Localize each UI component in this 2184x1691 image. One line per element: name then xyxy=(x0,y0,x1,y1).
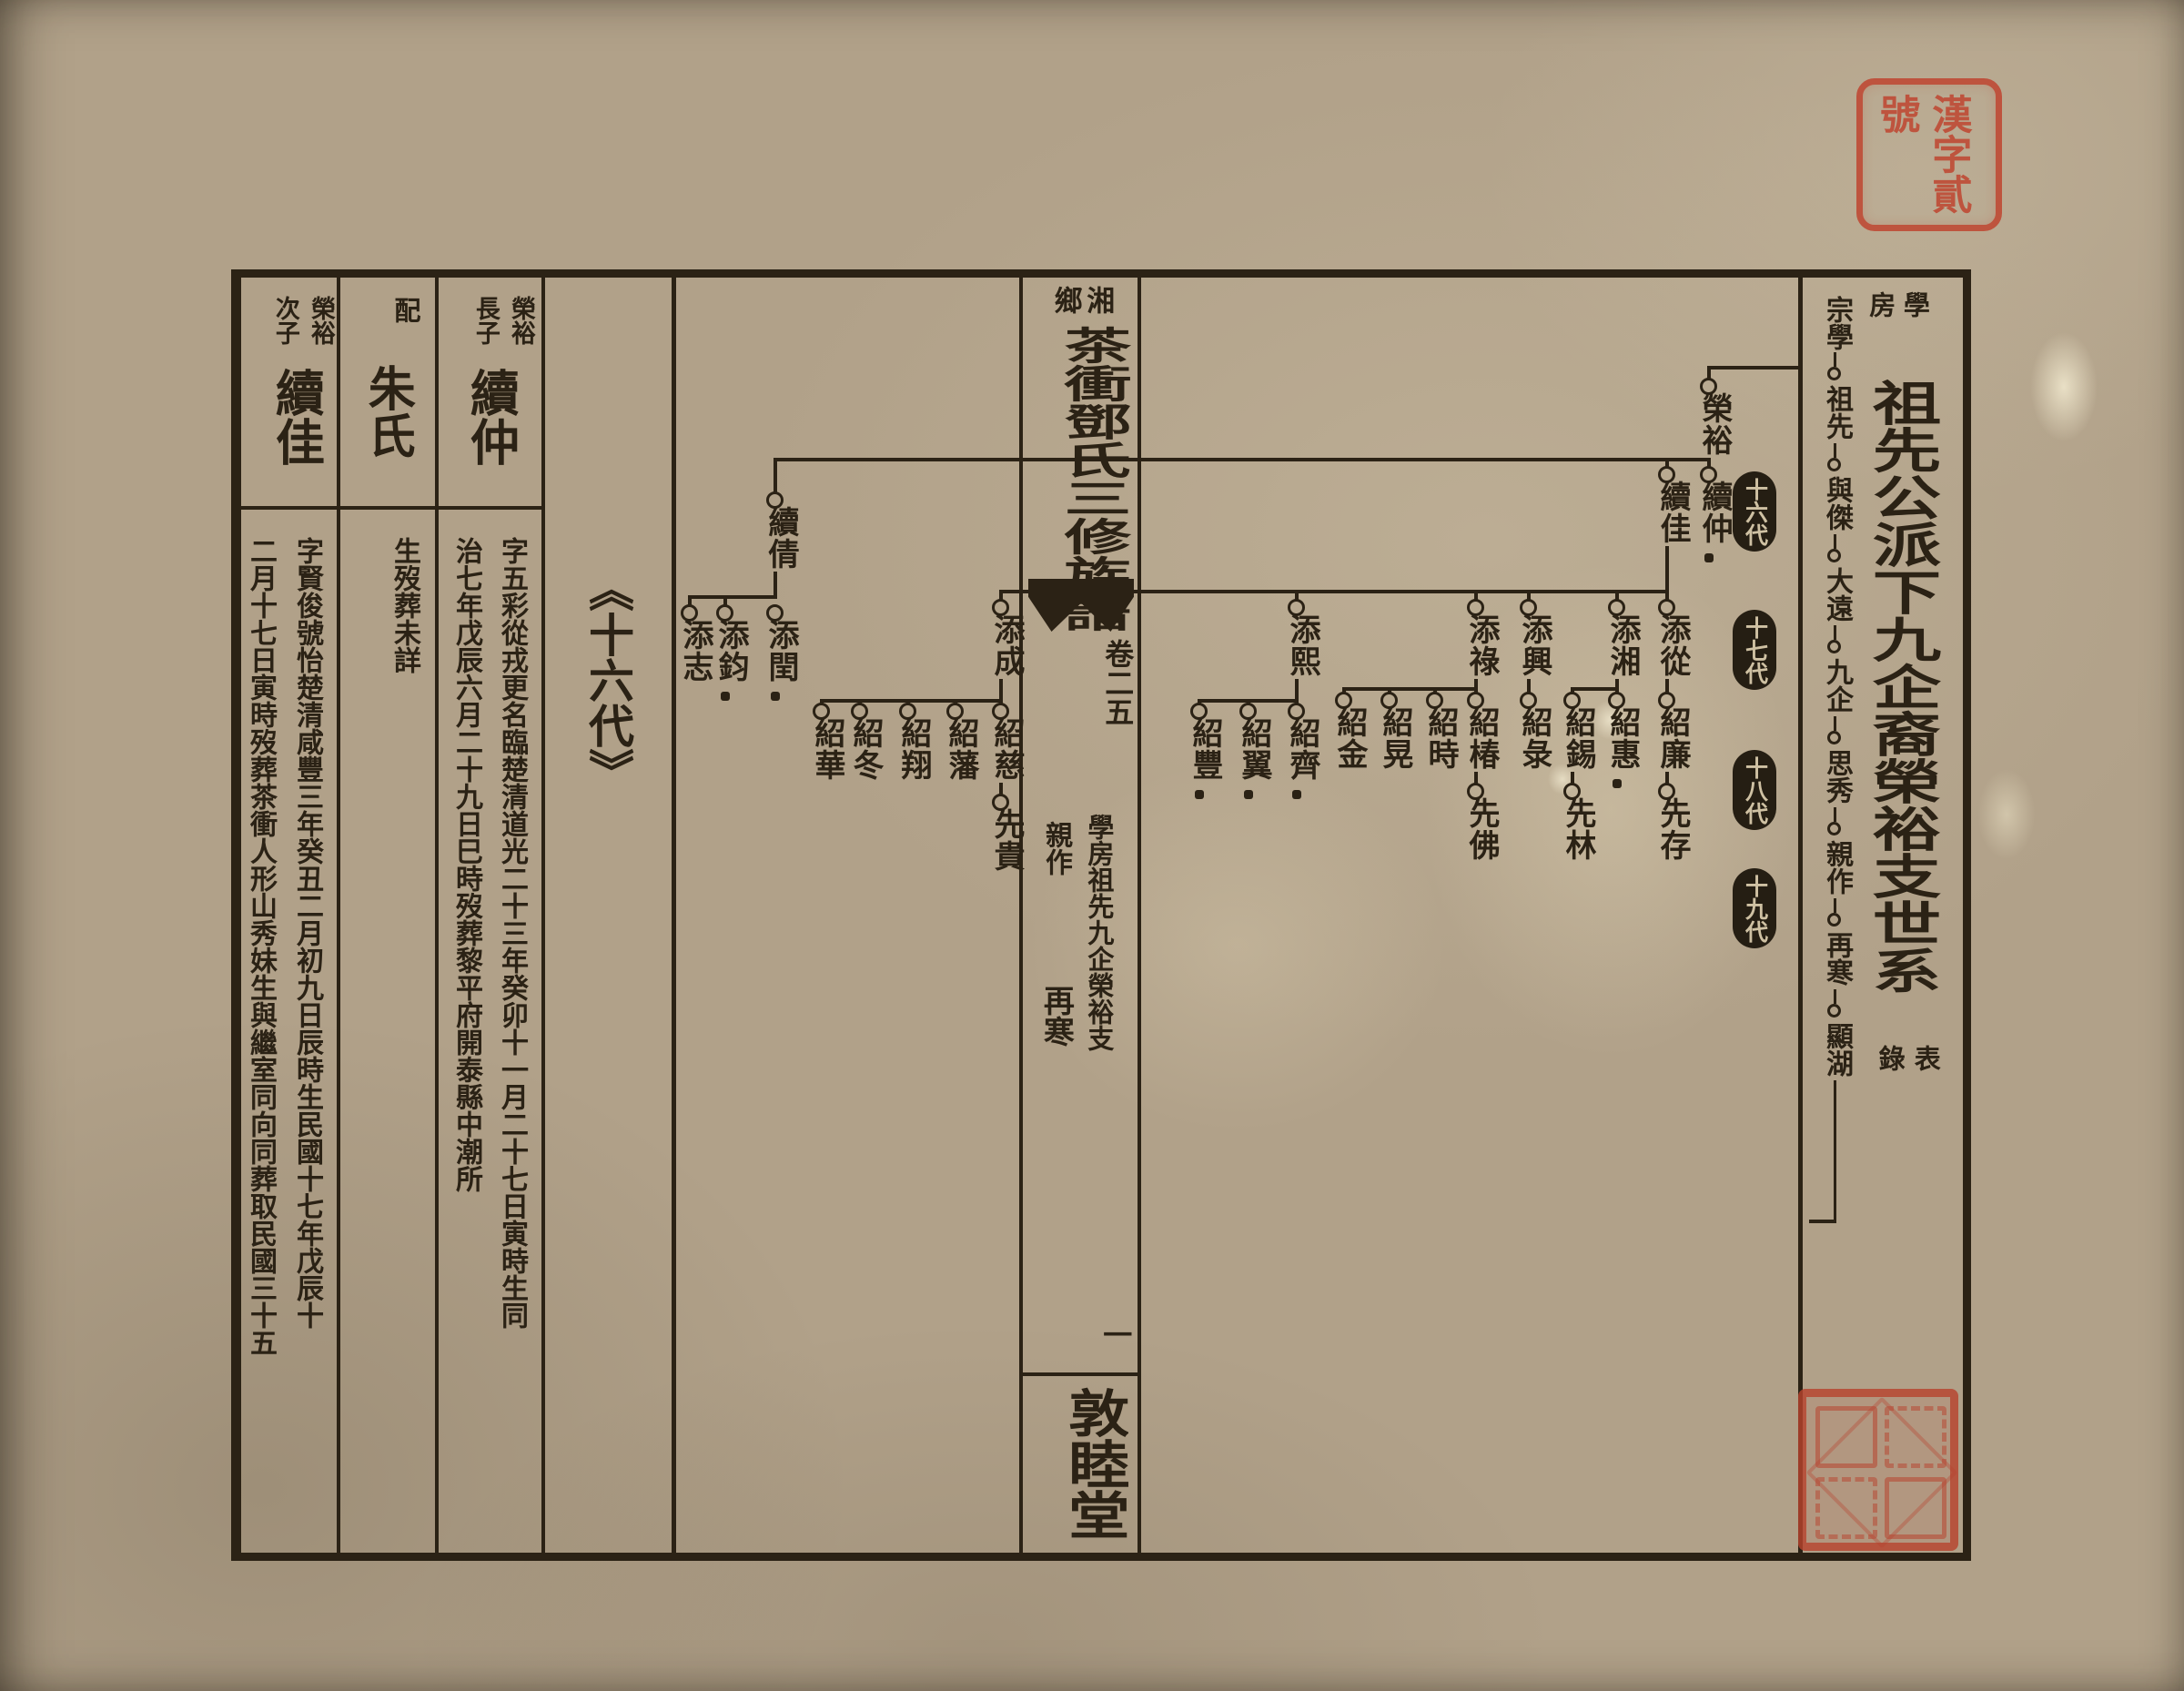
paper-stain xyxy=(1975,764,2038,865)
generation-badge: 十九代 xyxy=(1733,868,1776,948)
generation-badge: 十七代 xyxy=(1733,610,1776,690)
tree-node: 續佳 xyxy=(1646,481,1688,544)
tree-node: 紹椿 xyxy=(1455,706,1497,770)
tree-node: 紹時 xyxy=(1414,706,1456,770)
tree-node: 紹齊 xyxy=(1276,717,1318,781)
tree-node: 紹翼 xyxy=(1228,717,1269,781)
generation-marker: 《十六代》 xyxy=(582,566,633,794)
ancestor-chain-item: 親作 xyxy=(1821,840,1852,895)
entry-bio-column: 字五彩從戎更名臨楚清道光二十三年癸卯十一月二十七日寅時生同 xyxy=(496,537,527,1329)
ancestor-chain-item: 祖先 xyxy=(1821,385,1852,440)
lineage-circle xyxy=(1827,458,1841,471)
stop-dot xyxy=(721,692,730,701)
entry-relation: 榮裕長子 xyxy=(451,286,539,355)
tree-node: 紹藩 xyxy=(935,717,976,781)
tree-node: 添從 xyxy=(1646,613,1688,677)
entry-name: 續佳 xyxy=(268,368,321,466)
lineage-circle xyxy=(1827,549,1841,562)
chain-connector xyxy=(1834,443,1836,458)
tree-node: 紹慈 xyxy=(980,717,1022,781)
generation-badge: 十六代 xyxy=(1733,471,1776,552)
tree-node: 先林 xyxy=(1552,797,1593,861)
tree-node: 添熙 xyxy=(1276,613,1318,677)
ancestor-chain-item: 大遠 xyxy=(1821,567,1852,622)
lineage-circle xyxy=(1827,640,1841,653)
stop-dot xyxy=(771,692,780,701)
page-number: 一 xyxy=(1099,1320,1131,1349)
entry-relation: 配 xyxy=(389,297,419,323)
bio-text: 字賢俊號怡楚 xyxy=(292,537,322,701)
chain-connector xyxy=(1834,716,1836,731)
chain-connector xyxy=(1834,1080,1836,1221)
tree-sibling-bracket xyxy=(999,590,1669,593)
page-border-bottom xyxy=(231,1553,1971,1561)
tree-sibling-bracket xyxy=(1342,687,1478,691)
tree-node: 紹華 xyxy=(801,717,843,781)
fold-section-label: 學房祖先九企榮裕支 xyxy=(1083,814,1112,1051)
fold-volume-label: 卷二五 xyxy=(1101,639,1133,726)
branch-label: 學房 xyxy=(1862,291,1930,328)
generation-badge: 十八代 xyxy=(1733,750,1776,830)
lineage-circle xyxy=(1827,822,1841,835)
stop-dot xyxy=(1292,790,1301,799)
registration-seal-text: 漢字貳號 xyxy=(1870,94,1974,216)
tree-node: 續仲 xyxy=(1688,481,1730,544)
section-rule xyxy=(672,269,676,1556)
tree-node: 添湘 xyxy=(1596,613,1638,677)
tree-sibling-bracket xyxy=(688,595,777,599)
column-rule xyxy=(541,269,545,1556)
tree-node: 榮裕 xyxy=(1688,392,1730,456)
bio-text: 生歿葬未詳 xyxy=(389,537,420,673)
page-border-left xyxy=(231,269,241,1561)
bio-text: 治七年戊辰六月二十九日巳時歿葬黎平府開泰縣中潮所 xyxy=(451,537,481,1192)
stop-dot xyxy=(1704,553,1714,562)
fold-rule-left xyxy=(1019,269,1023,1556)
column-rule xyxy=(337,269,340,1556)
chain-connector xyxy=(1834,898,1836,913)
paper-stain xyxy=(2027,328,2100,446)
lineage-circle xyxy=(1827,913,1841,927)
tree-node: 先存 xyxy=(1646,797,1688,861)
tree-node: 紹晃 xyxy=(1369,706,1410,770)
tree-node: 紹金 xyxy=(1323,706,1365,770)
tree-sibling-bracket xyxy=(1571,687,1619,691)
page-title: 祖先公派下九企裔榮裕支世系 xyxy=(1861,379,1935,994)
tree-node: 添祿 xyxy=(1455,613,1497,677)
chain-connector xyxy=(1834,352,1836,367)
bio-text: 字五彩從戎更名臨楚 xyxy=(497,537,527,783)
stop-dot xyxy=(1244,790,1253,799)
tree-node: 紹惠 xyxy=(1596,706,1638,770)
tree-node: 先貴 xyxy=(980,808,1022,872)
lineage-circle xyxy=(1827,731,1841,744)
stop-dot xyxy=(1195,790,1204,799)
entry-bio-column: 生歿葬未詳 xyxy=(389,537,420,673)
tree-node: 紹彔 xyxy=(1508,706,1550,770)
registration-seal: 漢字貳號 xyxy=(1856,78,2002,231)
fold-compiler-name: 親作 xyxy=(1041,821,1071,876)
column-rule xyxy=(435,269,439,1556)
fold-place-label: 湘鄉 xyxy=(1049,286,1114,324)
lineage-circle xyxy=(1827,1004,1841,1018)
tree-connector xyxy=(1707,366,1800,370)
entry-name: 朱氏 xyxy=(360,364,412,459)
entry-bio-column: 治七年戊辰六月二十九日巳時歿葬黎平府開泰縣中潮所 xyxy=(450,537,481,1192)
tree-sibling-bracket xyxy=(820,699,1003,703)
tree-node: 續倩 xyxy=(754,506,796,570)
lineage-circle xyxy=(1827,367,1841,380)
tree-node: 紹廉 xyxy=(1646,706,1688,770)
tree-node: 添興 xyxy=(1508,613,1550,677)
tree-node: 先佛 xyxy=(1455,797,1497,861)
ancestor-chain-item: 顯湖 xyxy=(1821,1022,1852,1077)
tree-node: 添志 xyxy=(669,619,711,683)
ancestor-chain-item: 思秀 xyxy=(1821,749,1852,804)
chain-connector xyxy=(1809,1220,1836,1223)
tree-node: 添閏 xyxy=(754,619,796,683)
genealogy-scan-page: { "seals": { "registration": {"text": "漢… xyxy=(0,0,2184,1691)
entry-bio-column: 二月十七日寅時歿葬茶衝人形山秀妹生與繼室同向同葬取民國三十五 xyxy=(245,537,276,1356)
entry-bio-column: 字賢俊號怡楚清咸豐三年癸丑二月初九日辰時生民國十七年戊辰十 xyxy=(291,537,322,1329)
stop-dot xyxy=(1613,779,1622,788)
ancestor-chain-head: 宗學 xyxy=(1821,296,1852,350)
header-row-rule xyxy=(231,506,545,510)
tree-node: 紹冬 xyxy=(839,717,881,781)
ancestor-chain-item: 與傑 xyxy=(1821,476,1852,531)
tree-node: 紹錫 xyxy=(1552,706,1593,770)
tree-node: 紹翔 xyxy=(887,717,929,781)
tree-node: 添成 xyxy=(980,613,1022,677)
tree-node: 紹豐 xyxy=(1178,717,1220,781)
tree-connector xyxy=(773,458,777,494)
hall-name: 敦睦堂 xyxy=(1059,1387,1125,1540)
bio-text: 清咸豐三年癸丑二月初九日辰時生民國十七年戊辰十 xyxy=(292,701,322,1329)
entry-relation: 榮裕次子 xyxy=(251,286,339,355)
chain-connector xyxy=(1834,625,1836,640)
ancestor-chain-item: 九企 xyxy=(1821,658,1852,713)
bio-text: 二月十七日寅時歿葬茶衝人形山秀妹生與繼室同向同葬取民國三十五 xyxy=(246,537,276,1356)
ancestor-chain-item: 再寒 xyxy=(1821,931,1852,986)
fold-compiler-name: 再寒 xyxy=(1038,985,1072,1047)
page-border-right xyxy=(1963,269,1971,1561)
page-border-top xyxy=(231,269,1971,278)
bio-text: 清道光二十三年癸卯十一月二十七日寅時生同 xyxy=(497,783,527,1329)
chain-connector xyxy=(1834,807,1836,822)
fold-inner-rule xyxy=(1023,1372,1137,1376)
collection-seal xyxy=(1798,1389,1958,1551)
entry-name: 續仲 xyxy=(462,368,516,466)
paper-watermark xyxy=(992,728,1483,1165)
tree-sibling-bracket xyxy=(773,458,1711,461)
section-rule xyxy=(1798,269,1803,1556)
chain-connector xyxy=(1834,534,1836,549)
chain-connector xyxy=(1834,989,1836,1004)
fold-rule-right xyxy=(1137,269,1141,1556)
page-title-suffix: 表錄 xyxy=(1871,1045,1942,1081)
